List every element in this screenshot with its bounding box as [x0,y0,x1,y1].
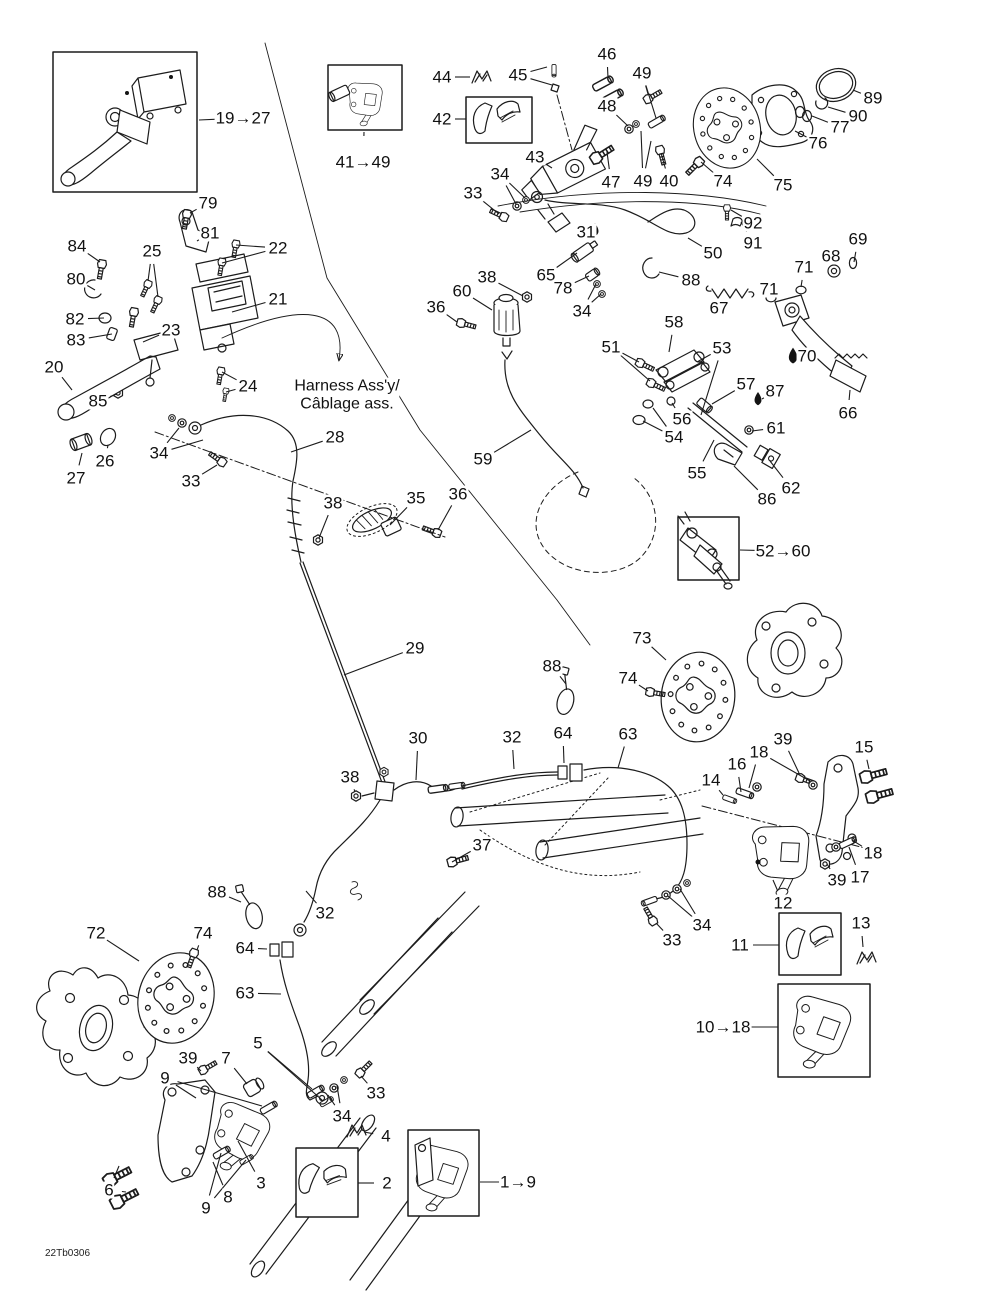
grease-drop-icon [789,348,797,364]
frame-tubes [350,773,703,900]
rear-hub [747,603,841,697]
inset-box-11 [779,913,841,975]
parking-lock-lever [155,432,445,550]
retaining-clip-icon [857,952,876,964]
cable-tie-icon [550,667,581,717]
inset-box-1-9 [408,1130,479,1216]
rear-mc-small-parts [538,204,605,297]
section-divider-line [265,43,590,645]
brake-pedal [775,295,867,392]
brake-line-junction [352,764,688,907]
fluid-reservoir [456,292,532,359]
grease-drop-icon [755,392,762,405]
inset-box-42 [466,97,532,143]
front-lower-hose [270,800,380,1100]
inset-box-10-18 [778,984,870,1077]
front-hub [37,968,156,1086]
front-master-cylinder [192,254,258,352]
brake-disc-rear-axle [657,649,739,746]
cable-tie-icon [235,882,264,931]
parts-diagram-page: Harness Ass'y/ Câblage ass. 22Tb0306 19→… [0,0,1000,1294]
front-brake-lever [58,330,178,451]
inset-box-41-49 [327,65,402,130]
grease-drop-icon [592,223,599,236]
diagram-artwork [0,0,1000,1294]
inset-box-52-60 [678,512,739,589]
rear-caliper-assembly [642,755,894,926]
inset-box-19-27 [53,52,197,192]
front-brake-hose-28 [169,415,387,788]
rear-brake-hose-50 [498,192,766,278]
reservoir-hose-59 [505,360,656,572]
inset-box-2 [296,1148,358,1217]
